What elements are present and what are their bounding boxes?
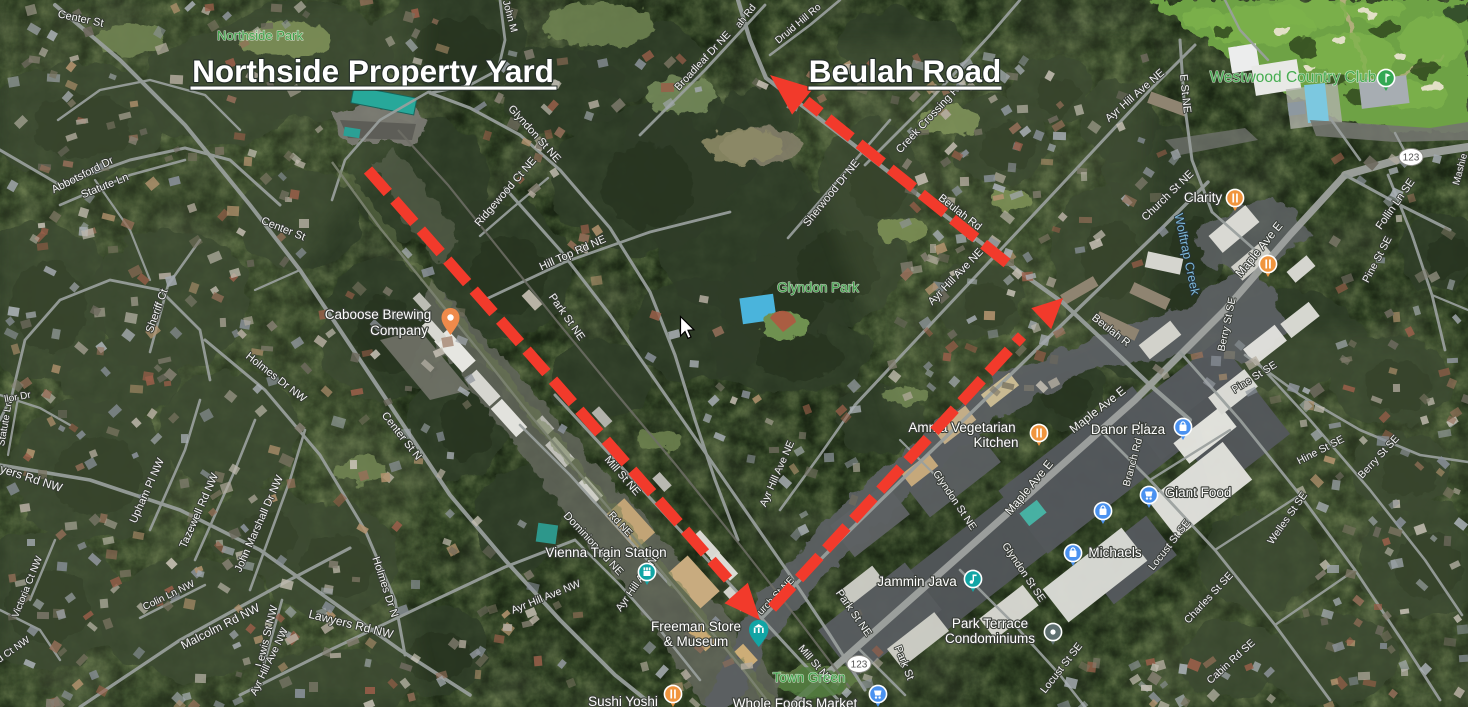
svg-text:Whole Foods Market: Whole Foods Market [733,696,858,707]
svg-text:Northside Park: Northside Park [217,28,303,43]
svg-text:Glyndon Park: Glyndon Park [777,280,859,295]
svg-text:& Museum: & Museum [664,634,729,649]
svg-text:Jammin Java: Jammin Java [877,574,957,589]
svg-text:Danor Plaza: Danor Plaza [1091,422,1166,437]
svg-text:Town Green: Town Green [773,670,846,685]
svg-text:Condominiums: Condominiums [945,631,1035,646]
svg-text:Amma Vegetarian: Amma Vegetarian [908,420,1015,435]
svg-text:123: 123 [851,660,868,671]
svg-text:Vienna Train Station: Vienna Train Station [545,545,666,560]
svg-text:Freeman Store: Freeman Store [651,619,741,634]
svg-text:Clarity: Clarity [1184,190,1223,205]
svg-text:Caboose Brewing: Caboose Brewing [325,307,432,322]
svg-text:Beulah Road: Beulah Road [809,53,1002,89]
svg-text:Westwood Country Club: Westwood Country Club [1210,69,1377,86]
svg-text:Park Terrace: Park Terrace [952,616,1028,631]
svg-text:Giant Food: Giant Food [1165,485,1232,500]
svg-text:Sushi Yoshi: Sushi Yoshi [588,694,658,707]
svg-text:Northside Property Yard: Northside Property Yard [192,53,554,89]
svg-text:Kitchen: Kitchen [973,435,1018,450]
svg-text:Michaels: Michaels [1088,545,1142,560]
svg-text:123: 123 [1403,153,1420,164]
svg-text:Company: Company [370,323,428,338]
